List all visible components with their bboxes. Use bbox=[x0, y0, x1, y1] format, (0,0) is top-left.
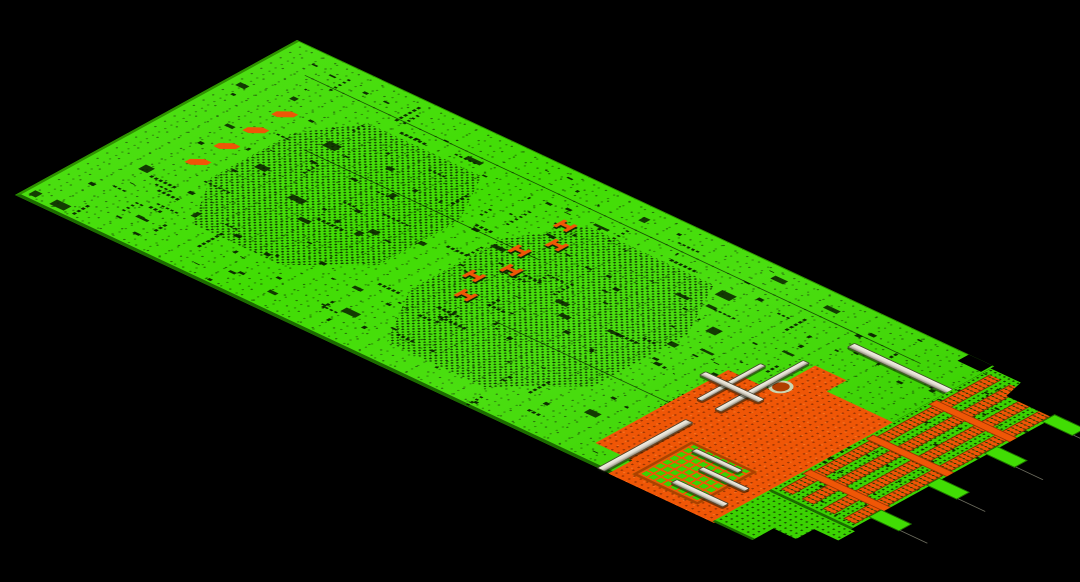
component-pad bbox=[868, 333, 877, 337]
pin-pad bbox=[920, 470, 925, 472]
component-pad bbox=[385, 302, 393, 306]
pin-pad bbox=[479, 213, 484, 215]
pin-pad bbox=[415, 115, 420, 117]
component-pad bbox=[331, 278, 335, 280]
component-pad bbox=[675, 253, 680, 256]
outline-step-line bbox=[1015, 467, 1043, 480]
component-pad bbox=[835, 349, 840, 351]
pin-pad bbox=[921, 449, 925, 451]
component-body bbox=[28, 190, 43, 198]
pin-pad bbox=[122, 190, 127, 192]
pin-pad bbox=[797, 321, 802, 323]
pcb-board bbox=[15, 40, 994, 521]
breakaway-tab bbox=[926, 478, 970, 500]
outline-step-line bbox=[900, 530, 928, 543]
pin-pad bbox=[81, 207, 86, 209]
pin-pad bbox=[876, 363, 881, 365]
pin-pad bbox=[820, 501, 825, 503]
pin-pad bbox=[174, 212, 179, 214]
pin-pad bbox=[338, 84, 343, 86]
pin-pad bbox=[943, 436, 948, 438]
pin-pad bbox=[206, 240, 211, 242]
component-pad bbox=[311, 64, 318, 67]
component-body bbox=[289, 96, 299, 101]
component-body bbox=[706, 327, 723, 336]
component-body bbox=[267, 290, 278, 296]
pin-pad bbox=[885, 465, 891, 468]
component-pad bbox=[246, 148, 252, 151]
component-pad bbox=[194, 262, 200, 265]
pin-pad bbox=[873, 493, 877, 495]
component-body bbox=[352, 286, 365, 292]
component-pad bbox=[895, 380, 903, 384]
pin-pad bbox=[412, 109, 417, 111]
component-pad bbox=[482, 174, 488, 177]
pin-pad bbox=[897, 480, 901, 482]
pin-pad bbox=[528, 391, 533, 393]
pin-pad bbox=[85, 205, 90, 207]
pin-pad bbox=[625, 230, 630, 232]
pin-pad bbox=[893, 353, 898, 355]
component-body bbox=[49, 199, 72, 210]
component-body bbox=[341, 308, 361, 318]
pin-pad bbox=[770, 368, 775, 370]
component-pad bbox=[129, 182, 135, 185]
pin-pad bbox=[76, 210, 81, 212]
pin-pad bbox=[422, 142, 427, 144]
component-pad bbox=[139, 204, 144, 207]
component-pad bbox=[304, 89, 308, 91]
component-body bbox=[699, 348, 715, 356]
pin-pad bbox=[342, 82, 347, 84]
component-pad bbox=[714, 362, 721, 365]
power-inductor bbox=[213, 139, 241, 153]
pin-pad bbox=[802, 319, 807, 321]
component-pad bbox=[230, 93, 236, 96]
pin-pad bbox=[334, 311, 339, 313]
pin-pad bbox=[1058, 410, 1064, 413]
pin-pad bbox=[162, 224, 167, 226]
pin-pad bbox=[483, 211, 488, 213]
component-pad bbox=[710, 359, 714, 361]
component-pad bbox=[435, 366, 439, 368]
pin-pad bbox=[537, 386, 542, 388]
pin-pad bbox=[395, 292, 400, 294]
component-body bbox=[224, 123, 236, 129]
eda-3d-viewport[interactable] bbox=[0, 0, 1080, 582]
power-inductor bbox=[271, 108, 299, 122]
pin-pad bbox=[416, 107, 421, 109]
pin-pad bbox=[168, 190, 173, 192]
component-pad bbox=[692, 354, 699, 357]
pin-pad bbox=[72, 212, 77, 214]
component-pad bbox=[197, 141, 205, 145]
component-pad bbox=[88, 182, 96, 186]
breakaway-tab bbox=[1042, 414, 1080, 436]
pin-pad bbox=[616, 235, 621, 237]
pin-pad bbox=[210, 237, 215, 239]
pin-pad bbox=[475, 249, 480, 251]
component-pad bbox=[326, 318, 332, 321]
pin-pad bbox=[889, 356, 894, 358]
component-pad bbox=[797, 345, 804, 349]
pin-pad bbox=[838, 471, 844, 474]
component-pad bbox=[276, 276, 283, 279]
pin-pad bbox=[408, 112, 413, 114]
component-body bbox=[770, 275, 788, 284]
pin-pad bbox=[731, 317, 736, 319]
pin-pad bbox=[488, 231, 493, 233]
outline-step-line bbox=[958, 499, 986, 512]
pin-pad bbox=[692, 270, 697, 272]
pin-pad bbox=[488, 209, 493, 211]
component-pad bbox=[544, 170, 549, 172]
pin-pad bbox=[510, 221, 515, 223]
component-pad bbox=[770, 270, 775, 272]
component-pad bbox=[740, 361, 744, 363]
component-body bbox=[781, 350, 795, 357]
component-pad bbox=[527, 197, 532, 199]
component-pad bbox=[752, 342, 759, 345]
outline-step-line bbox=[1073, 435, 1080, 448]
breakaway-tab bbox=[868, 510, 912, 532]
component-pad bbox=[132, 231, 141, 236]
pin-pad bbox=[533, 389, 538, 391]
component-pad bbox=[240, 256, 246, 259]
component-pad bbox=[567, 177, 574, 180]
pin-pad bbox=[201, 242, 206, 244]
pin-pad bbox=[788, 326, 793, 328]
pin-pad bbox=[873, 475, 877, 477]
pin-pad bbox=[403, 114, 408, 116]
component-pad bbox=[592, 451, 598, 454]
component-body bbox=[138, 165, 154, 173]
power-inductor bbox=[184, 155, 212, 169]
component-pad bbox=[806, 335, 812, 338]
pin-pad bbox=[695, 250, 700, 252]
component-pad bbox=[228, 270, 237, 274]
pin-pad bbox=[175, 198, 180, 200]
component-pad bbox=[575, 190, 580, 193]
component-pad bbox=[611, 397, 617, 400]
pin-pad bbox=[523, 214, 528, 216]
pin-pad bbox=[157, 210, 162, 212]
pin-pad bbox=[410, 117, 415, 119]
pin-pad bbox=[505, 223, 510, 225]
component-pad bbox=[697, 318, 702, 320]
component-pad bbox=[563, 212, 570, 216]
pin-pad bbox=[536, 413, 541, 415]
pin-pad bbox=[621, 233, 626, 235]
component-pad bbox=[361, 326, 368, 329]
component-pad bbox=[398, 302, 402, 304]
component-pad bbox=[115, 215, 122, 219]
component-pad bbox=[543, 402, 551, 406]
pin-pad bbox=[471, 251, 476, 253]
pin-pad bbox=[774, 366, 779, 368]
component-pad bbox=[596, 204, 600, 206]
component-pad bbox=[238, 271, 246, 275]
component-pad bbox=[509, 213, 513, 215]
pin-pad bbox=[126, 207, 131, 209]
pin-pad bbox=[172, 186, 177, 188]
component-pad bbox=[673, 373, 676, 375]
pin-pad bbox=[784, 328, 789, 330]
pin-pad bbox=[466, 403, 471, 405]
pin-pad bbox=[326, 303, 331, 305]
pin-pad bbox=[479, 396, 484, 398]
pin-pad bbox=[158, 227, 163, 229]
component-body bbox=[823, 305, 841, 314]
component-body bbox=[584, 409, 603, 418]
component-pad bbox=[307, 119, 314, 123]
component-body bbox=[638, 217, 651, 224]
component-pad bbox=[565, 208, 573, 212]
component-pad bbox=[207, 278, 214, 281]
pin-pad bbox=[793, 324, 798, 326]
component-pad bbox=[662, 366, 667, 369]
component-pad bbox=[362, 91, 369, 95]
slot-connector bbox=[846, 343, 953, 394]
component-pad bbox=[928, 389, 936, 393]
pin-pad bbox=[197, 245, 202, 247]
pin-pad bbox=[984, 392, 990, 395]
component-pad bbox=[917, 339, 923, 342]
pin-pad bbox=[154, 229, 159, 231]
component-pad bbox=[187, 191, 196, 195]
pin-pad bbox=[480, 247, 485, 249]
pin-pad bbox=[330, 301, 335, 303]
component-pad bbox=[653, 362, 663, 367]
component-pad bbox=[383, 101, 390, 104]
pin-pad bbox=[346, 79, 351, 81]
pin-pad bbox=[957, 427, 962, 429]
component-body bbox=[715, 290, 737, 301]
component-pad bbox=[675, 233, 681, 236]
pin-pad bbox=[785, 316, 790, 318]
pin-pad bbox=[467, 254, 472, 256]
component-pad bbox=[329, 74, 337, 78]
component-pad bbox=[545, 202, 553, 206]
pin-pad bbox=[982, 413, 987, 415]
pin-pad bbox=[514, 218, 519, 220]
component-body bbox=[235, 82, 249, 89]
pin-pad bbox=[518, 216, 523, 218]
component-pad bbox=[624, 406, 629, 409]
pin-pad bbox=[122, 209, 127, 211]
pin-pad bbox=[873, 451, 878, 454]
component-pad bbox=[233, 250, 239, 253]
component-pad bbox=[652, 357, 660, 361]
breakaway-tab bbox=[984, 446, 1028, 468]
pin-pad bbox=[131, 204, 136, 206]
power-inductor bbox=[242, 123, 270, 137]
component-pad bbox=[756, 298, 764, 302]
pin-pad bbox=[766, 370, 771, 372]
pin-pad bbox=[527, 211, 532, 213]
